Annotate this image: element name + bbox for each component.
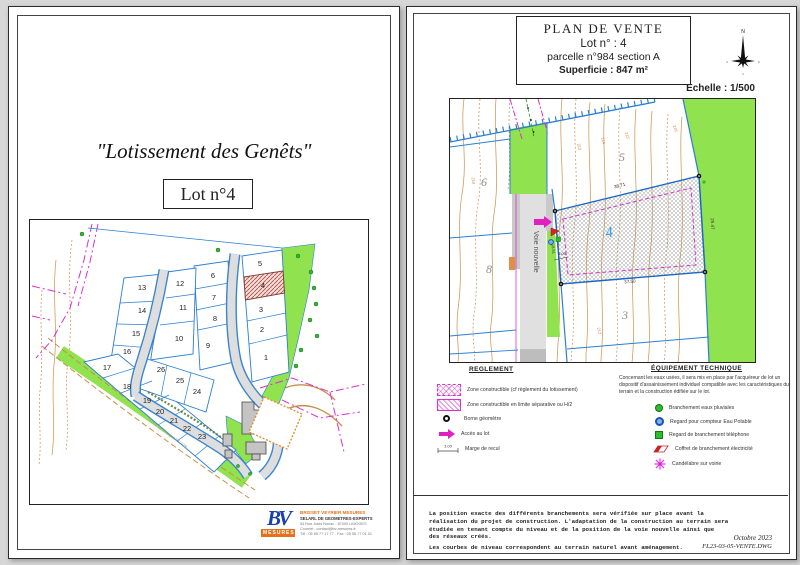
compass-south-label: S: [742, 72, 744, 76]
lot-number: 8: [213, 314, 217, 323]
legend-row: Branchement eaux pluviales: [655, 404, 734, 412]
electricity-box-icon: [653, 445, 669, 453]
sale-plan-frame: 5683 213214215216214212 4 Voie nouvelle …: [449, 98, 756, 363]
legend-row: Zone constructible (cf règlement du loti…: [437, 384, 578, 396]
lot-number: 15: [132, 329, 140, 338]
neighbor-lot-label: 6: [481, 175, 487, 189]
surveyor-details: BRISSET VEYRIER MESURES SELARL DE GEOMET…: [300, 507, 373, 549]
footer-divider: [413, 495, 788, 496]
lot-number: 3: [259, 305, 263, 314]
lot-number: 22: [183, 424, 191, 433]
plan-title: PLAN DE VENTE: [517, 21, 690, 37]
legend-row: Zone constructible en limite séparative …: [437, 399, 572, 411]
sheet-left: "Lotissement des Genêts" Lot n°4: [8, 6, 400, 559]
legend-row: Borne géomètre: [443, 415, 501, 422]
plan-area: Superficie : 847 m²: [517, 65, 690, 76]
rainwater-icon: [655, 404, 663, 412]
compass-rose: N S O E: [721, 27, 765, 91]
lot-number: 5: [258, 259, 262, 268]
lot-number: 16: [123, 347, 131, 356]
plan-parcel: parcelle n°984 section A: [517, 51, 690, 63]
overview-map: 1234567891011121314151617181920212223242…: [30, 220, 368, 504]
scale-label: Echelle : 1/500: [637, 83, 755, 94]
legend-label: Branchement eaux pluviales: [669, 405, 734, 411]
lot-number: 21: [170, 416, 178, 425]
dim-setback: 3.00: [558, 251, 567, 256]
dim-right: 25.47: [710, 218, 716, 230]
lot-number: 12: [176, 279, 184, 288]
setback-value: 3.00: [444, 444, 453, 449]
legend-label: Zone constructible en limite séparative …: [467, 402, 572, 408]
dim-bottom: 37.50: [624, 278, 636, 284]
compass-west-label: O: [726, 60, 729, 64]
legend-label: Marge de recul: [465, 446, 500, 452]
lot-number: 14: [138, 306, 146, 315]
legend-row: Regard de branchement téléphone: [655, 431, 749, 439]
lot-number: 10: [175, 334, 183, 343]
lot-number: 26: [157, 365, 165, 374]
reglement-heading: REGLEMENT: [469, 366, 513, 373]
legend-label: Accès au lot: [461, 431, 489, 437]
plan-lot-number: Lot n° : 4: [517, 38, 690, 50]
legend-row: Regard pour compteur Eau Potable: [655, 417, 752, 426]
legend-row: Candélabre sur voirie: [654, 458, 721, 470]
legend-label: Candélabre sur voirie: [672, 461, 721, 467]
bv-logo-mark: BV MESURES: [261, 507, 295, 549]
street-lamp-icon: [654, 458, 666, 470]
lot-number: 24: [193, 387, 201, 396]
north-arrow-icon: N S O E: [721, 27, 765, 91]
lot-number: 13: [138, 283, 146, 292]
water-meter-icon: [655, 417, 664, 426]
zone-constructible-icon: [437, 384, 461, 396]
sale-plan-map: 5683 213214215216214212 4 Voie nouvelle …: [450, 99, 755, 362]
legend-row: Accès au lot: [439, 429, 489, 439]
lot-number: 25: [176, 376, 184, 385]
lot-number: 7: [212, 293, 216, 302]
compass-north-label: N: [741, 29, 745, 35]
legend-label: Regard de branchement téléphone: [669, 432, 749, 438]
setback-icon: 3.00: [437, 443, 459, 454]
neighbor-lot-label: 8: [486, 262, 492, 276]
surveyor-logo: BV MESURES BRISSET VEYRIER MESURES SELAR…: [261, 507, 391, 549]
legend-row: Coffret de branchement électricité: [653, 445, 753, 453]
title-block: PLAN DE VENTE Lot n° : 4 parcelle n°984 …: [516, 16, 691, 85]
neighbor-lot-label: 3: [621, 308, 628, 322]
equipement-heading: ÉQUIPEMENT TECHNIQUE: [651, 365, 742, 372]
scanned-plan-document: "Lotissement des Genêts" Lot n°4: [0, 0, 800, 565]
plan-filename: FL23-03-05-VENTE.DWG: [647, 543, 772, 550]
legend-row: 3.00 Marge de recul: [437, 443, 500, 454]
bv-brand: MESURES: [261, 529, 295, 537]
sheet-right: PLAN DE VENTE Lot n° : 4 parcelle n°984 …: [406, 6, 797, 560]
lot-number: 19: [143, 396, 151, 405]
lot-number: 4: [261, 281, 265, 290]
telephone-box-icon: [655, 431, 663, 439]
equipement-note: Concernant les eaux usées, il sera mis e…: [619, 375, 791, 395]
telephone-box-icon: [556, 237, 561, 242]
zone-limite-icon: [437, 399, 461, 411]
legend-label: Zone constructible (cf règlement du loti…: [467, 387, 578, 393]
neighbor-lot-label: 5: [619, 150, 625, 164]
subdivision-title: "Lotissement des Genêts": [9, 139, 399, 164]
surveyor-phone: Tél : 05 55 77 17 77 - Fax : 05 55 77 01…: [300, 532, 373, 537]
dim-left: 18.51: [551, 244, 557, 255]
lot-number: 9: [206, 341, 210, 350]
overview-map-frame: 1234567891011121314151617181920212223242…: [29, 219, 369, 505]
plan-date: Octobre 2023: [647, 534, 772, 542]
voie-nouvelle-label: Voie nouvelle: [532, 231, 539, 273]
eaux-pluviales-marker: [702, 180, 705, 183]
lot-number: 6: [211, 271, 215, 280]
lot-number: 18: [123, 382, 131, 391]
lot-number: 23: [198, 432, 206, 441]
lot-number-box: Lot n°4: [163, 179, 253, 209]
legend-label: Borne géomètre: [464, 416, 501, 422]
legend-label: Regard pour compteur Eau Potable: [670, 419, 752, 425]
legend-label: Coffret de branchement électricité: [675, 446, 753, 452]
lot-number: 2: [260, 325, 264, 334]
bv-initials: BV: [261, 507, 295, 529]
compass-east-label: E: [758, 60, 760, 64]
lot-number: 11: [179, 303, 187, 312]
lot-number: 17: [103, 363, 111, 372]
borne-icon: [443, 415, 450, 422]
lot-number: 1: [264, 353, 268, 362]
lot-number: 20: [156, 407, 164, 416]
access-arrow-icon: [439, 429, 455, 439]
